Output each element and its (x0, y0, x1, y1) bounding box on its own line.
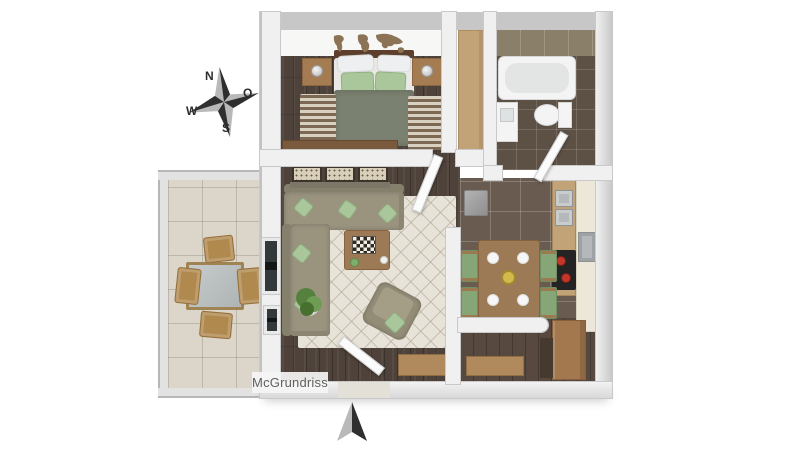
prints-sideboard (290, 182, 390, 188)
balcony-window (262, 238, 280, 294)
shoe-rack (540, 338, 553, 378)
balcony-railing-left (158, 170, 168, 398)
dinner-plate (517, 252, 529, 264)
balcony-chair (203, 235, 236, 264)
tall-cabinet (458, 30, 484, 156)
wall-hall-divider (458, 318, 548, 332)
wall-bedroom-south (260, 150, 432, 166)
compass-label-east: O (243, 86, 252, 100)
oven (578, 232, 596, 262)
compass-label-north: N (205, 69, 214, 83)
dining-chair (461, 287, 478, 319)
dinner-plate (487, 294, 499, 306)
toilet-tank (558, 102, 572, 128)
dining-chair (540, 250, 557, 282)
console-table (398, 354, 452, 376)
sink-basin (500, 108, 514, 122)
bed-duvet (334, 90, 414, 146)
compass-rose: N O W S (178, 60, 270, 144)
outer-wall-top (260, 12, 612, 30)
wall-bathroom-south (544, 166, 612, 180)
framed-print (292, 166, 322, 182)
chessboard (352, 236, 376, 254)
bathtub-basin (505, 63, 569, 93)
toilet-bowl (534, 104, 560, 126)
world-map-icon (328, 33, 412, 54)
table-decor-green (350, 258, 359, 267)
balcony-railing-top (158, 170, 262, 180)
dinner-plate (517, 294, 529, 306)
bed-pillow-white (377, 54, 412, 72)
wall-living-kitchen (446, 228, 460, 384)
watermark-label: McGrundriss (252, 372, 328, 393)
north-arrow-icon (332, 400, 372, 444)
hall-cabinet (466, 356, 524, 376)
balcony-chair (199, 311, 233, 340)
sink-basin-double (555, 190, 573, 207)
bedside-lamp (421, 65, 433, 77)
balcony-railing-bottom (158, 388, 262, 398)
corner-sofa-left (290, 224, 330, 336)
outer-wall-right (596, 12, 612, 398)
fruit-bowl (501, 270, 516, 285)
dining-chair (540, 287, 557, 319)
balcony-window-lower (264, 306, 280, 334)
wardrobe (552, 320, 586, 380)
balcony-chair (174, 267, 202, 305)
cooktop-burner (561, 273, 571, 283)
compass-label-south: S (222, 121, 230, 135)
dining-chair (461, 250, 478, 282)
sink-basin-double (555, 209, 573, 226)
bathroom-wall-face (496, 30, 596, 56)
floor-plan-scene: N O W S (0, 0, 800, 449)
dinner-plate (487, 252, 499, 264)
compass-label-west: W (186, 104, 197, 118)
bed-pillow-white (337, 54, 375, 73)
framed-print (325, 166, 355, 182)
framed-print (358, 166, 388, 182)
wall-bathroom-west (484, 12, 496, 168)
runner-rug (408, 96, 444, 150)
runner-rug (300, 94, 336, 146)
entrance-threshold (338, 382, 390, 398)
bathtub (498, 56, 576, 100)
hall-stool (464, 190, 488, 216)
wall-bedroom-east (442, 12, 456, 152)
cooktop-burner (556, 256, 566, 266)
table-candle (380, 256, 388, 264)
bedside-lamp (311, 65, 323, 77)
potted-plant (300, 302, 314, 316)
wall-bathroom-south (484, 166, 502, 180)
